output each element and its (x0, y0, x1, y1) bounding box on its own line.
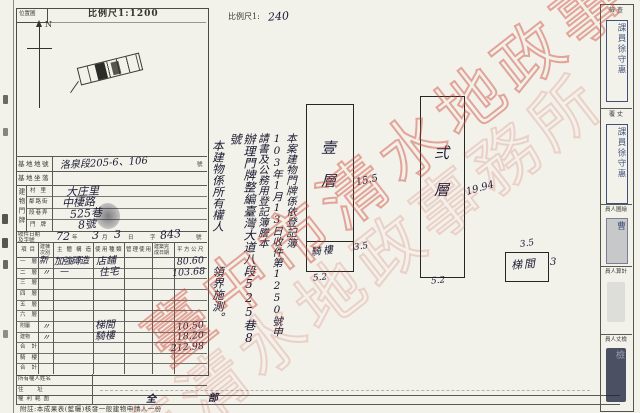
cell-dim-hand: 〃 (42, 323, 50, 331)
receipt-year-value: 72 (56, 231, 70, 242)
receipt-zi-unit: 字 (150, 236, 156, 242)
floor2-label: 弍層 (431, 145, 452, 225)
sidebar-header-recheck: 覆 丈 (602, 112, 630, 118)
table-header-area: 平方公尺 (177, 248, 205, 254)
floor1-label: 壹層 (318, 140, 339, 210)
stamp-text: 檢 (606, 350, 626, 361)
sidebar-stamp-calculator (607, 282, 625, 322)
receipt-no-value: 843 (159, 228, 181, 241)
owner-address-label: 住 址 (18, 388, 49, 394)
floor1-height-dim: 15.5 (355, 174, 379, 188)
footnote: 附註:本成果表(藍曬)核發一般建物申請人一份 (20, 406, 162, 413)
floor2-label-text: 弍層 (432, 145, 450, 219)
stamp-text: 課員徐守惠 (607, 23, 627, 76)
site-seat-label: 基地坐落 (18, 175, 50, 182)
receipt-day-value: 3 (114, 229, 121, 240)
receipt-day-unit: 日 (128, 236, 134, 242)
sidebar-divider (600, 334, 632, 335)
north-label: N (45, 21, 52, 29)
sidebar-divider (600, 266, 632, 267)
receipt-label-line2: 及字號 (18, 239, 35, 245)
door-row-label: 鄰路街 (29, 200, 49, 206)
table-header-structure: 主體構造 (57, 248, 95, 254)
sidebar-header-surveyor: 員人丈檢 (602, 338, 630, 344)
table-header-use: 使用種類 (95, 248, 123, 254)
sidebar-stamp-check: 課員徐守惠 (606, 20, 628, 102)
table-row-label: 建物 (20, 335, 30, 340)
table-row-label: 六層 (20, 313, 43, 319)
owner-rights-label: 權利範圍 (18, 397, 52, 403)
stairwell-height-dim: 3 (550, 258, 556, 268)
table-row-label: 合計 (20, 345, 43, 351)
floor1-label-text: 壹層 (319, 140, 337, 206)
page-fold-line (13, 0, 14, 413)
grid-line (16, 171, 207, 172)
grid-line (16, 300, 207, 301)
location-map-label-box: 位置圖 (17, 9, 48, 23)
cell-area-hand: 103.68 (172, 267, 205, 279)
floor2-height-dim: 19.94 (465, 180, 495, 198)
grid-line (16, 185, 207, 186)
sidebar-stamp-surveyor: 檢 (606, 348, 626, 402)
grid-line (16, 395, 620, 396)
grid-line (26, 196, 207, 197)
scanned-survey-document: 位置圖 比例尺1:1200 比例尺1: 240 N 基地地號 洛泉段205-6、… (0, 0, 640, 413)
cell-use-hand: 住宅 (99, 267, 120, 278)
rights-stamp: 部 (208, 394, 218, 404)
parcel-sketch-fill (110, 61, 121, 75)
site-no-label: 基地地號 (18, 161, 50, 168)
hand-scale-prefix: 比例尺1: (228, 13, 260, 21)
cell-structure-hand: — (60, 268, 69, 277)
door-row-label: 村里 (30, 189, 51, 195)
table-row-label: 騎樓 (20, 356, 43, 362)
grid-line (93, 242, 94, 374)
rights-stamp: 全 (146, 395, 156, 405)
grid-line (26, 185, 27, 231)
edge-mark (3, 128, 8, 136)
sidebar-header-calculator: 員人算計 (602, 270, 630, 276)
hand-scale-value: 240 (268, 10, 290, 22)
location-map-label: 位置圖 (19, 12, 36, 18)
grid-line (16, 374, 17, 404)
sidebar-divider (600, 204, 632, 205)
north-cross-tick (27, 48, 52, 49)
grid-line (124, 242, 125, 374)
receipt-month-unit: 月 (102, 236, 108, 242)
north-arrow-head (36, 20, 42, 27)
sidebar-header-check: 檢 查 (602, 8, 630, 14)
receipt-month-value: 3 (92, 230, 99, 241)
owner-name-label: 所有權人姓名 (18, 377, 51, 383)
vertical-note-block: 本案建物門牌係依登記簿 103年1月13日收件第1250號申 請書及公務用登記簿… (228, 133, 298, 345)
cell-dim-hand: 新 (39, 257, 48, 266)
sidebar-stamp-recheck: 課員徐守惠 (606, 124, 628, 204)
table-header-date-b: 成日期 (154, 251, 169, 256)
table-row-label: 附屬 (20, 324, 30, 329)
grid-line (16, 289, 207, 290)
table-row-label: 四層 (20, 292, 43, 298)
map-header-rule (48, 22, 206, 23)
floor2-width-dim: 5.2 (431, 276, 446, 286)
cell-dim-hand: 〃 (42, 269, 50, 277)
vertical-note-line: 本案建物門牌係依登記簿 (284, 133, 298, 345)
vertical-note-line: 103年1月13日收件第1250號申 (270, 133, 284, 345)
stamp-text: 課員徐守惠 (607, 127, 627, 180)
grid-line (16, 242, 207, 243)
stairwell-width-dim: 3.5 (519, 239, 534, 250)
floor1-arcade-divider (307, 241, 353, 242)
sidebar-stamp-drafter: 曹 (606, 218, 628, 264)
stairwell-label: 梯間 (511, 258, 538, 271)
sidebar-header-drafter: 員人圖繪 (602, 208, 630, 214)
cell-area-total-hand: 212.98 (170, 342, 205, 354)
receipt-year-unit: 年 (72, 236, 78, 242)
floor1-width-dim: 5.2 (313, 273, 328, 283)
stamp-text: 曹 (607, 221, 627, 232)
edge-mark (2, 214, 8, 224)
owner-note-block: 本建物係所有權人領界施測。 (211, 140, 225, 390)
grid-line (52, 156, 53, 231)
table-header-manage: 管理使用 (126, 248, 152, 254)
sidebar-divider (600, 108, 632, 109)
table-row-label: 合計 (20, 366, 43, 372)
north-arrow-line (39, 26, 40, 108)
edge-mark (3, 95, 8, 104)
grid-line (152, 242, 153, 374)
parcel-sketch-fill (94, 62, 108, 80)
owner-note-end: 領界施測。 (211, 266, 225, 324)
cell-use-hand: 騎樓 (95, 331, 116, 342)
vertical-note-line: 辦理門牌整編臺灣大道八段525巷8號 (228, 133, 256, 345)
edge-mark (3, 260, 8, 269)
receipt-no-unit: 號 (196, 236, 202, 242)
cell-structure-hand: 加強磚造 (54, 256, 88, 267)
door-row-label: 段巷弄 (29, 211, 49, 217)
grid-line (16, 363, 207, 364)
grid-line (16, 310, 207, 311)
owner-note-start: 本建物係所有權人 (211, 140, 225, 232)
site-no-suffix: 號 (197, 163, 203, 169)
door-group-label: 建物門牌 (16, 188, 26, 230)
table-row-label: 三層 (20, 281, 43, 287)
floor1-arcade-dim: 3.5 (353, 242, 368, 253)
table-header-item: 項目 (21, 248, 38, 254)
table-row-label: 五層 (20, 303, 43, 309)
address-scribble-line (100, 390, 590, 391)
cell-dim-hand: 〃 (42, 334, 50, 342)
table-row-label: 二層 (20, 271, 43, 277)
vertical-note-line: 請書及公務用登記簿謄本 (256, 133, 270, 345)
owner-note: 本建物係所有權人領界施測。 (211, 140, 225, 390)
map-scale-label: 比例尺1:1200 (88, 10, 159, 19)
door-row-label: 門牌 (30, 223, 51, 229)
edge-mark (2, 238, 8, 248)
grid-line (16, 385, 207, 386)
grid-line (92, 374, 93, 404)
edge-mark (3, 330, 8, 338)
